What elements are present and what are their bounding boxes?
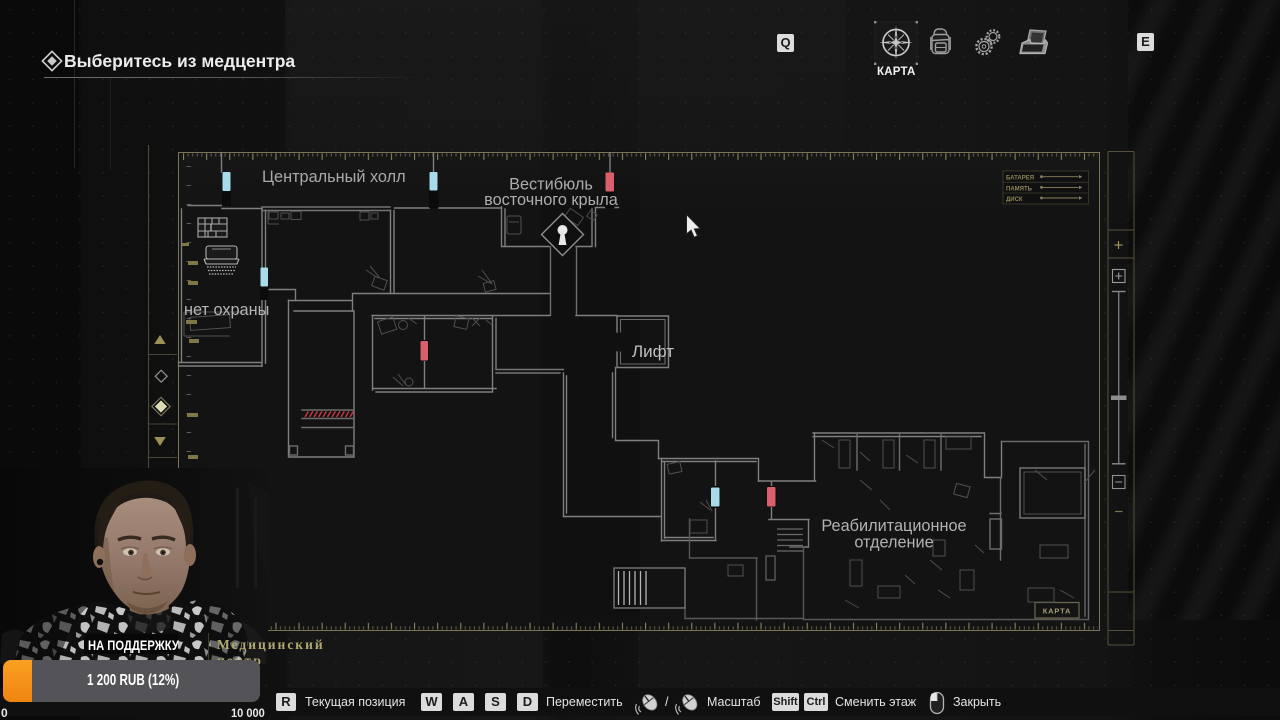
- svg-text:Лифт: Лифт: [632, 342, 674, 361]
- svg-text:отделение: отделение: [854, 534, 933, 552]
- svg-text:нет охраны: нет охраны: [184, 301, 269, 319]
- svg-text:КАРТА: КАРТА: [1043, 607, 1071, 616]
- svg-text:восточного крыла: восточного крыла: [484, 191, 619, 209]
- svg-text:ПАМЯТЬ: ПАМЯТЬ: [1006, 186, 1033, 192]
- svg-text:БАТАРЕЯ: БАТАРЕЯ: [1006, 176, 1034, 182]
- svg-text:Реабилитационное: Реабилитационное: [821, 517, 966, 535]
- svg-text:ДИСК: ДИСК: [1006, 197, 1023, 203]
- svg-text:Центральный холл: Центральный холл: [262, 168, 406, 186]
